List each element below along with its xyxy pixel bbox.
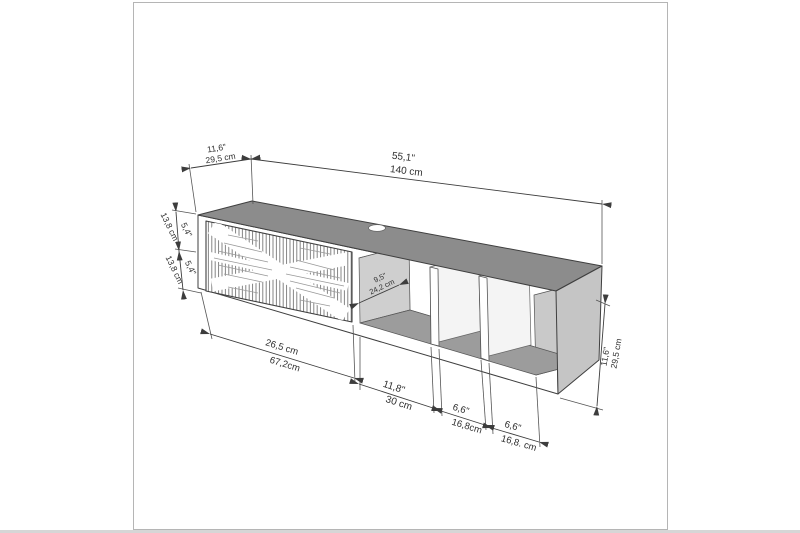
tv-unit-dimension-drawing: 55,1" 140 cm 11,6" 29,5 cm 13,8 cm 5,4" … [0, 0, 800, 533]
divider-2-front [479, 276, 489, 361]
cable-hole [369, 225, 386, 232]
dimension-diagram-page: 55,1" 140 cm 11,6" 29,5 cm 13,8 cm 5,4" … [0, 0, 800, 533]
divider-1-front [430, 267, 439, 346]
